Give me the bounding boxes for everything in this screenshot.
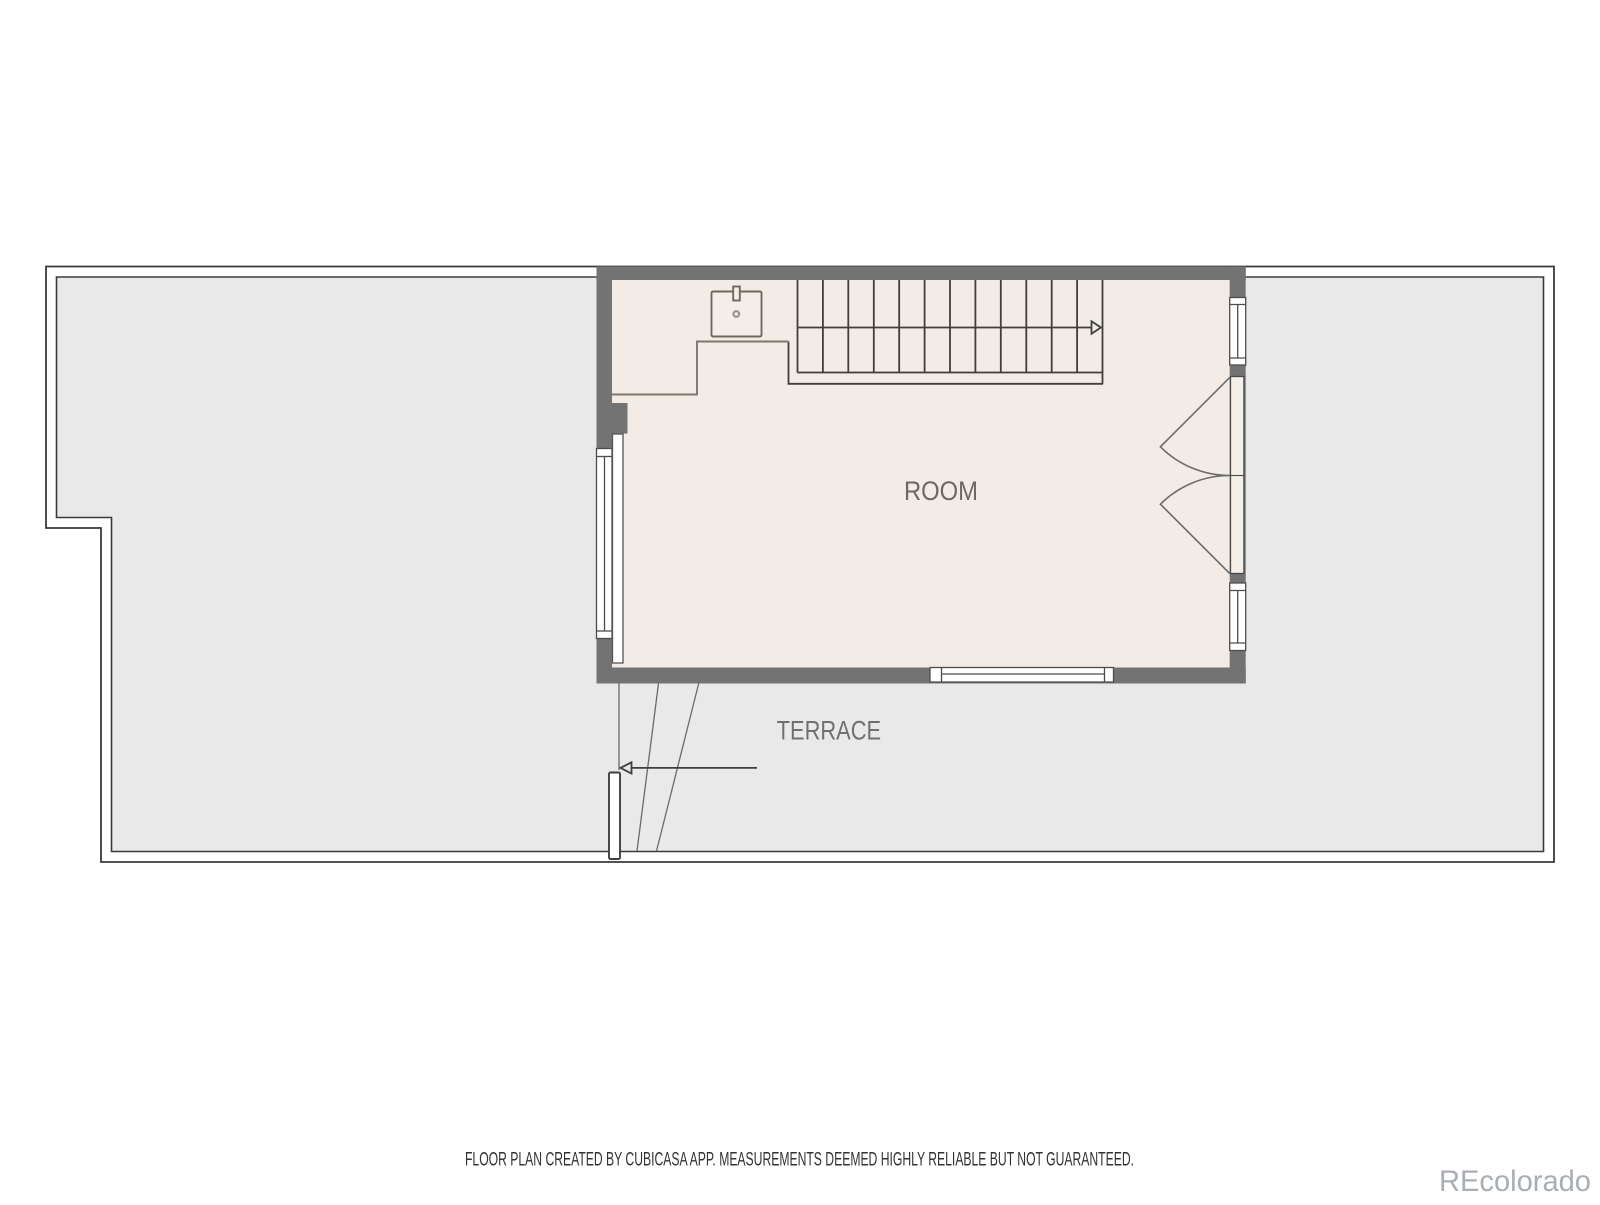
svg-text:TERRACE: TERRACE: [777, 715, 882, 745]
svg-text:ROOM: ROOM: [904, 475, 978, 506]
svg-text:FLOOR PLAN CREATED BY CUBICASA: FLOOR PLAN CREATED BY CUBICASA APP. MEAS…: [465, 1148, 1134, 1170]
svg-text:REcolorado: REcolorado: [1439, 1165, 1591, 1198]
